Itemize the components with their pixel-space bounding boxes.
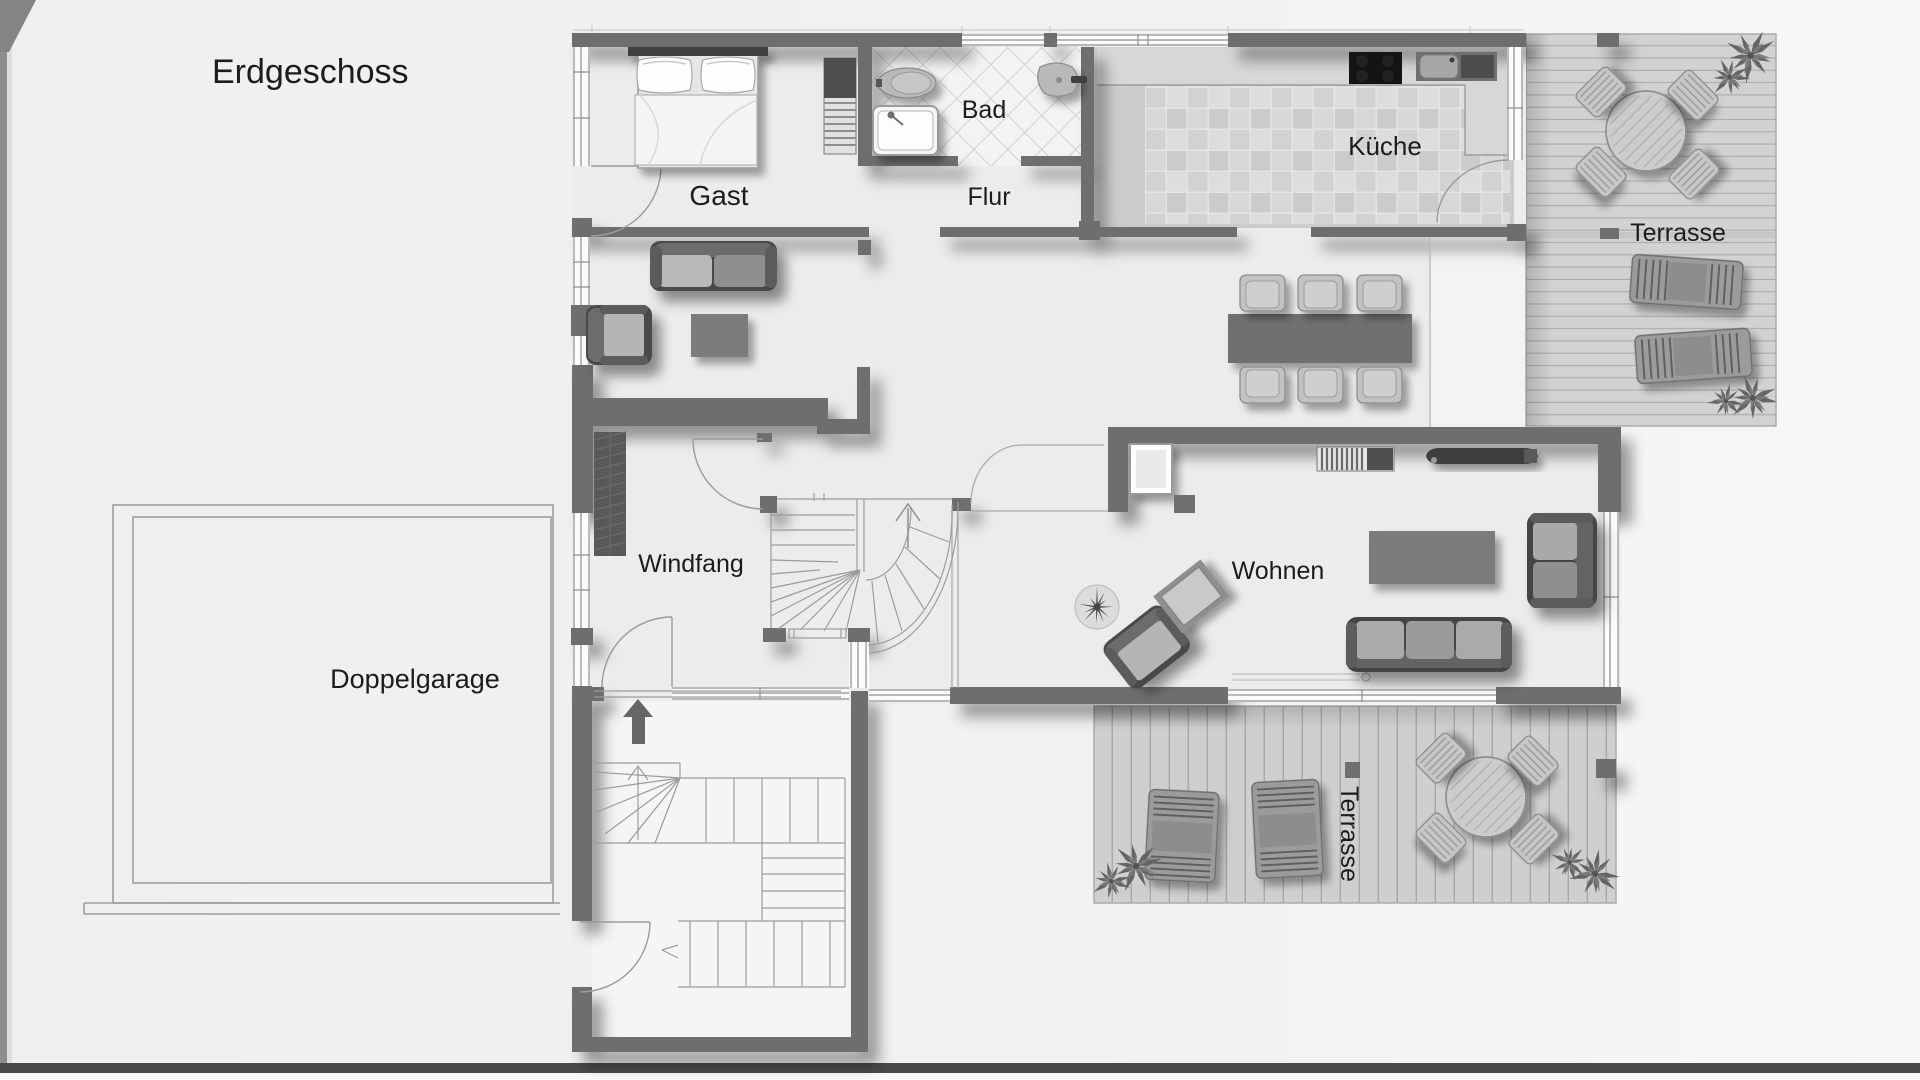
svg-text:Gast: Gast bbox=[689, 180, 748, 211]
svg-text:Küche: Küche bbox=[1348, 131, 1422, 161]
svg-text:Flur: Flur bbox=[967, 183, 1010, 211]
svg-text:Terrasse: Terrasse bbox=[1630, 219, 1726, 247]
svg-text:Doppelgarage: Doppelgarage bbox=[330, 664, 500, 694]
svg-text:Windfang: Windfang bbox=[638, 550, 744, 578]
svg-text:Terrasse: Terrasse bbox=[1335, 786, 1363, 882]
svg-text:Erdgeschoss: Erdgeschoss bbox=[212, 53, 409, 91]
svg-text:Wohnen: Wohnen bbox=[1232, 557, 1325, 585]
svg-text:Bad: Bad bbox=[962, 96, 1006, 124]
